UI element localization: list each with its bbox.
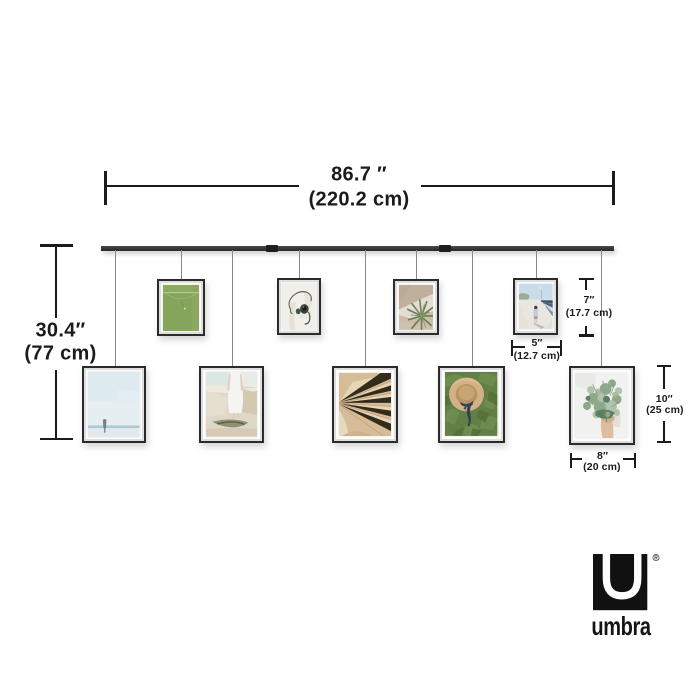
svg-text:R: R bbox=[654, 555, 658, 561]
